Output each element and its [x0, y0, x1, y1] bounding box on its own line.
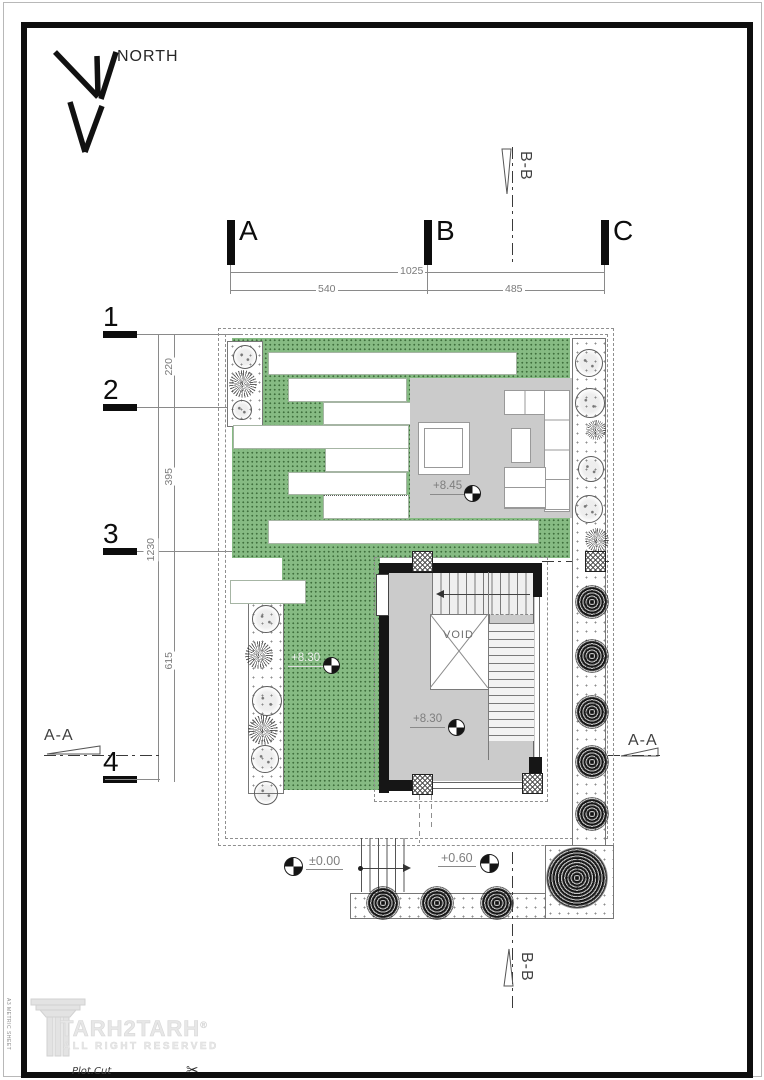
- north-label: NORTH: [117, 48, 179, 66]
- level-terrace: +8.45: [430, 480, 465, 495]
- level-entry: +0.60: [438, 851, 476, 867]
- tree-icon: [575, 349, 603, 377]
- grid-line-4: [105, 779, 160, 780]
- sheet-edge-note: A3 METRIC SHEET: [5, 998, 11, 1050]
- dim-left-seg-615: 615: [162, 652, 177, 670]
- steps-arrow-icon: [403, 864, 411, 872]
- sofa-side-table: [511, 428, 531, 463]
- section-label-bb-bottom: B-B: [517, 952, 535, 982]
- entry-steps: [361, 838, 407, 892]
- level-marker-icon: [480, 854, 499, 873]
- section-label-aa-left: A-A: [44, 727, 74, 745]
- pergola-slat: [323, 495, 409, 519]
- dim-line-left-segments: [174, 334, 175, 782]
- tree-icon: [575, 585, 609, 619]
- pergola-slat: [233, 425, 409, 449]
- terrace-table-inner: [424, 428, 463, 468]
- grid-col-a-label: A: [239, 217, 258, 245]
- drawing-sheet: NORTH A B C 1025 540 485 B-B 1 2 3 4 220…: [0, 0, 764, 1080]
- grid-row-4-label: 4: [103, 748, 119, 776]
- tree-icon: [252, 686, 282, 716]
- column-icon: [585, 551, 606, 572]
- level-ground: ±0.00: [306, 854, 343, 870]
- logo-name: TARH2TARH: [60, 1016, 200, 1041]
- dim-top-seg-540: 540: [316, 284, 338, 295]
- tree-icon: [575, 797, 609, 831]
- grid-row-2-bar: [103, 404, 137, 411]
- level-marker-icon: [284, 857, 303, 876]
- column-icon: [412, 551, 433, 572]
- tree-icon: [575, 695, 609, 729]
- grid-row-2-label: 2: [103, 376, 119, 404]
- scissors-icon: ✂: [186, 1061, 199, 1079]
- dim-top-total: 1025: [398, 266, 425, 277]
- grid-row-3-label: 3: [103, 520, 119, 548]
- dim-left-seg-395: 395: [162, 468, 177, 486]
- tree-icon: [575, 495, 603, 523]
- stair-direction-line: [443, 594, 530, 595]
- pergola-slat: [268, 520, 539, 544]
- pergola-slat: [288, 378, 407, 402]
- grid-col-c-label: C: [613, 217, 633, 245]
- logo-tagline: ALL RIGHT RESERVED: [63, 1041, 219, 1052]
- ground-outline-v1: [419, 795, 420, 843]
- section-line-aa-right: [608, 755, 660, 756]
- pergola-slat: [288, 472, 407, 495]
- section-marker-c-bar: [601, 220, 609, 265]
- tree-icon: [480, 886, 514, 920]
- level-lawn: +8.30: [288, 652, 323, 667]
- logo-registered-icon: ®: [200, 1020, 207, 1030]
- grid-row-1-bar: [103, 331, 137, 338]
- tree-icon: [254, 781, 278, 805]
- shrub-icon: [585, 528, 609, 552]
- grid-row-3-bar: [103, 548, 137, 555]
- window: [376, 574, 389, 616]
- pergola-slat: [268, 352, 517, 375]
- sofa-right-seats: [544, 390, 570, 512]
- section-line-aa-left: [44, 755, 160, 756]
- pergola-slat: [323, 402, 412, 425]
- tree-icon: [575, 745, 609, 779]
- steps-start-dot: [358, 866, 363, 871]
- shrub-icon: [229, 370, 257, 398]
- level-stair: +8.30: [410, 713, 445, 728]
- level-marker-icon: [448, 719, 465, 736]
- tree-icon: [251, 745, 279, 773]
- section-label-bb-top: B-B: [516, 151, 534, 181]
- grid-row-1-label: 1: [103, 303, 119, 331]
- tree-icon: [420, 886, 454, 920]
- shrub-icon: [245, 641, 273, 669]
- sofa-bottom-seats: [504, 467, 546, 509]
- section-flag-icon: [620, 747, 660, 758]
- steps-direction-line: [361, 868, 405, 869]
- section-marker-b-bar: [424, 220, 432, 265]
- wall-top: [379, 563, 542, 573]
- glazing-line: [539, 597, 540, 757]
- void-box: VOID: [430, 614, 490, 690]
- column-icon: [522, 773, 543, 794]
- void-cross-icon: [430, 614, 488, 688]
- tree-icon: [578, 456, 604, 482]
- bench-slat: [230, 580, 306, 604]
- void-label: VOID: [443, 629, 474, 641]
- column-icon: [412, 774, 433, 795]
- shrub-icon: [248, 715, 278, 745]
- plot-cut-label: Plot.Cut: [72, 1066, 111, 1077]
- tree-icon: [575, 388, 605, 418]
- tree-icon: [232, 400, 252, 420]
- level-marker-icon: [464, 485, 481, 502]
- stair-flight-right: [489, 623, 534, 741]
- stair-direction-arrow-icon: [436, 590, 444, 598]
- level-marker-icon: [323, 657, 340, 674]
- tree-icon: [366, 886, 400, 920]
- shrub-icon: [586, 420, 606, 440]
- section-marker-a-bar: [227, 220, 235, 265]
- grid-col-b-label: B: [436, 217, 455, 245]
- section-flag-icon: [503, 948, 515, 988]
- section-flag-icon: [501, 148, 513, 196]
- dim-left-seg-220: 220: [162, 358, 177, 376]
- tree-icon: [546, 847, 608, 909]
- dim-left-total: 1230: [144, 538, 159, 561]
- tree-icon: [233, 345, 257, 369]
- pergola-slat: [325, 448, 409, 472]
- logo-wordmark: TARH2TARH®: [60, 1016, 207, 1042]
- dim-line-top-segments: [230, 290, 605, 291]
- dim-top-seg-485: 485: [503, 284, 525, 295]
- tree-icon: [575, 639, 609, 673]
- tree-icon: [252, 605, 280, 633]
